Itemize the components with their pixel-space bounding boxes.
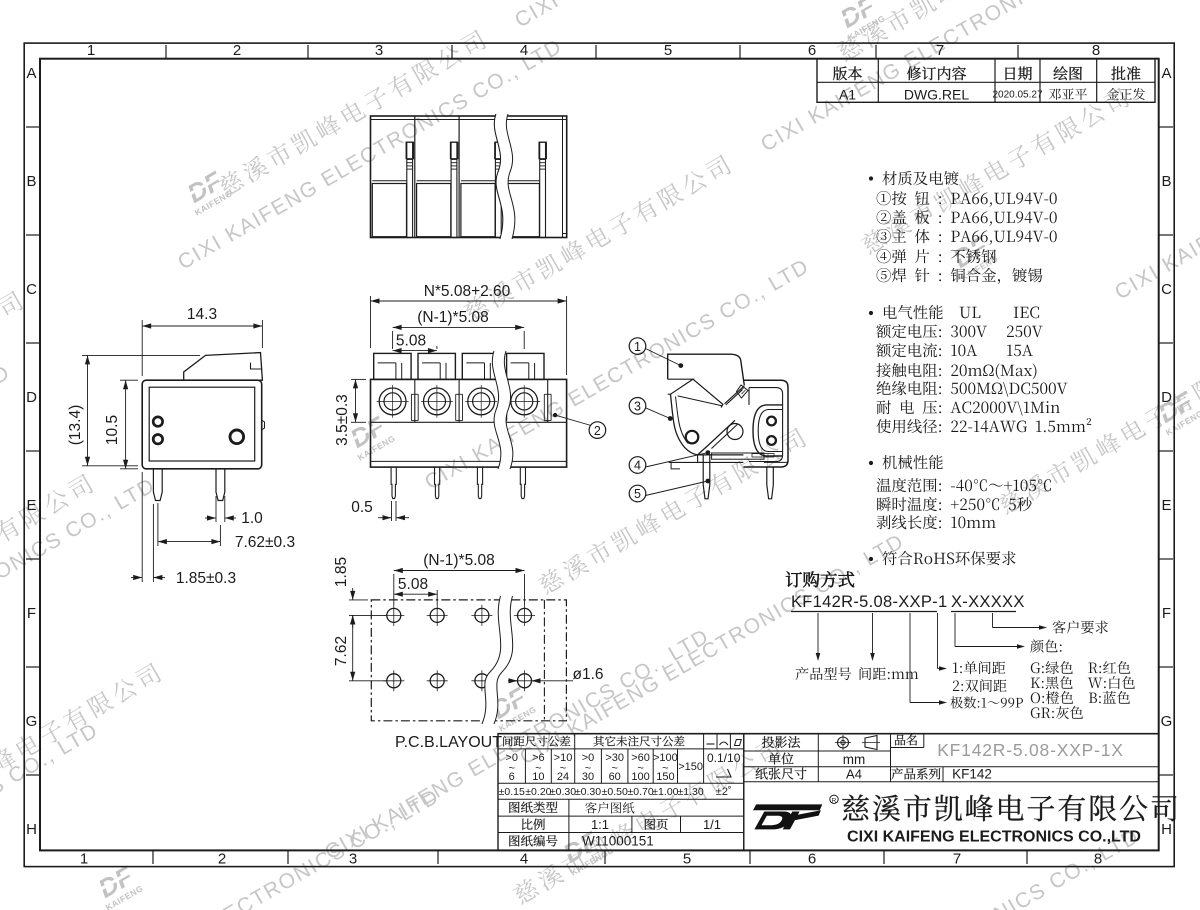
svg-text:1: 1	[634, 340, 641, 354]
svg-text:±0.15: ±0.15	[499, 786, 525, 798]
svg-text:±0.20: ±0.20	[525, 786, 551, 798]
svg-text:N*5.08+2.60: N*5.08+2.60	[424, 283, 511, 300]
svg-text:0.1/10: 0.1/10	[707, 751, 741, 765]
svg-text:X-XXXXX: X-XXXXX	[951, 593, 1025, 611]
svg-text:KF142: KF142	[952, 767, 992, 782]
svg-text:5.08: 5.08	[398, 576, 428, 593]
svg-text:D: D	[26, 389, 37, 406]
svg-text:7.62±0.3: 7.62±0.3	[235, 534, 295, 551]
svg-text:KF142R-5.08-XXP-1X: KF142R-5.08-XXP-1X	[937, 740, 1124, 760]
svg-text:±2˚: ±2˚	[716, 786, 732, 798]
svg-text:4: 4	[520, 851, 528, 868]
svg-text:D: D	[1161, 389, 1172, 406]
svg-text:3: 3	[375, 42, 383, 59]
svg-text:R: R	[832, 797, 837, 804]
svg-text:2020.05.27: 2020.05.27	[992, 90, 1042, 101]
svg-text:3: 3	[349, 851, 357, 868]
svg-text:6: 6	[509, 771, 515, 783]
svg-text:E: E	[1161, 497, 1171, 514]
svg-text:mm: mm	[843, 752, 866, 767]
svg-text:6: 6	[808, 42, 816, 59]
svg-text:5: 5	[683, 851, 691, 868]
svg-text:1.85: 1.85	[333, 557, 350, 587]
svg-text:A: A	[26, 65, 36, 82]
svg-text:2: 2	[233, 42, 241, 59]
svg-text:150: 150	[656, 771, 674, 783]
svg-text:7.62: 7.62	[333, 636, 350, 666]
svg-text:±0.30: ±0.30	[575, 786, 601, 798]
svg-text:2: 2	[594, 424, 601, 438]
svg-text:CIXI KAIFENG ELECTRONICS CO.,L: CIXI KAIFENG ELECTRONICS CO.,LTD	[847, 829, 1141, 846]
svg-text:100: 100	[631, 771, 649, 783]
svg-text:6: 6	[808, 851, 816, 868]
svg-text:F: F	[1162, 605, 1171, 622]
svg-text:C: C	[1161, 281, 1172, 298]
svg-text:±0.70: ±0.70	[627, 786, 653, 798]
svg-text:ø1.6: ø1.6	[572, 666, 603, 683]
svg-text:DWG.REL: DWG.REL	[904, 87, 970, 103]
svg-text:G: G	[1161, 713, 1173, 730]
svg-text:(13.4): (13.4)	[67, 405, 84, 446]
svg-text:1: 1	[87, 42, 95, 59]
svg-text:10: 10	[532, 771, 544, 783]
svg-text:KF142R-5.08-XXP-1: KF142R-5.08-XXP-1	[791, 593, 947, 611]
svg-text:F: F	[27, 605, 36, 622]
svg-text:±0.30: ±0.30	[550, 786, 576, 798]
svg-text:2: 2	[218, 851, 226, 868]
svg-text:1:1: 1:1	[591, 817, 609, 832]
svg-text:(N-1)*5.08: (N-1)*5.08	[417, 309, 489, 326]
svg-text:8: 8	[1092, 42, 1100, 59]
svg-text:7: 7	[936, 42, 944, 59]
svg-text:5.08: 5.08	[396, 333, 426, 350]
svg-text:5: 5	[634, 487, 641, 501]
svg-text:H: H	[1161, 821, 1172, 838]
svg-text:A4: A4	[846, 767, 862, 782]
svg-text:8: 8	[1094, 851, 1102, 868]
svg-text:B: B	[1161, 173, 1171, 190]
svg-text:±1.00: ±1.00	[652, 786, 678, 798]
svg-text:B: B	[26, 173, 36, 190]
svg-text:1.85±0.3: 1.85±0.3	[176, 570, 236, 587]
svg-text:W11000151: W11000151	[582, 834, 654, 849]
svg-text:A: A	[1161, 65, 1171, 82]
svg-text:G: G	[26, 713, 38, 730]
svg-text:P.C.B.LAYOUT: P.C.B.LAYOUT	[395, 734, 502, 751]
svg-text:24: 24	[557, 771, 569, 783]
svg-text:±1.30: ±1.30	[677, 786, 703, 798]
svg-text:5: 5	[664, 42, 672, 59]
svg-text:H: H	[26, 821, 37, 838]
svg-text:±0.50: ±0.50	[602, 786, 628, 798]
svg-text:A1: A1	[839, 87, 856, 103]
svg-text:60: 60	[609, 771, 621, 783]
svg-text:1.0: 1.0	[241, 510, 263, 527]
svg-text:3: 3	[634, 400, 641, 414]
svg-text:3.5±0.3: 3.5±0.3	[334, 394, 351, 446]
svg-text:4: 4	[634, 459, 641, 473]
svg-text:0.5: 0.5	[351, 499, 373, 516]
svg-text:C: C	[26, 281, 37, 298]
svg-text:(N-1)*5.08: (N-1)*5.08	[423, 552, 495, 569]
svg-text:E: E	[26, 497, 36, 514]
svg-text:7: 7	[953, 851, 961, 868]
svg-text:>150: >150	[678, 761, 703, 773]
svg-text:30: 30	[582, 771, 594, 783]
svg-text:1: 1	[80, 851, 88, 868]
svg-text:1/1: 1/1	[703, 817, 721, 832]
svg-text:14.3: 14.3	[187, 306, 217, 323]
svg-text:10.5: 10.5	[104, 415, 121, 445]
svg-text:4: 4	[520, 42, 528, 59]
